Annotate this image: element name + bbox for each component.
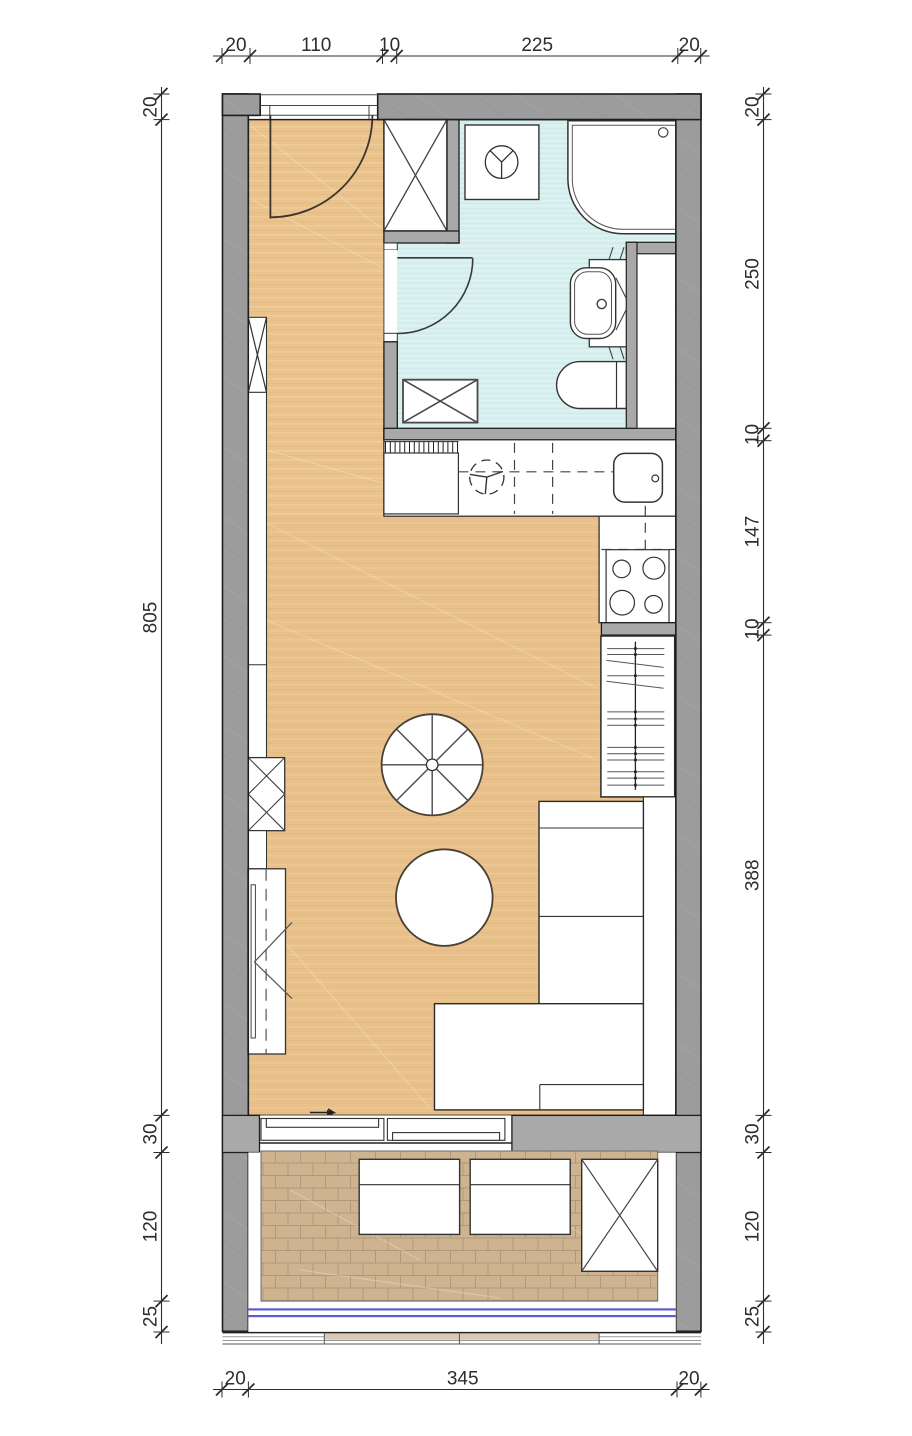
- svg-text:20: 20: [225, 1369, 246, 1390]
- svg-text:25: 25: [743, 1306, 764, 1327]
- svg-text:10: 10: [743, 618, 764, 639]
- svg-text:120: 120: [743, 1211, 764, 1243]
- svg-text:20: 20: [678, 1369, 699, 1390]
- svg-text:20: 20: [743, 96, 764, 117]
- svg-text:10: 10: [379, 35, 400, 56]
- svg-text:10: 10: [743, 424, 764, 445]
- svg-text:250: 250: [743, 258, 764, 290]
- svg-text:225: 225: [521, 35, 553, 56]
- svg-text:30: 30: [141, 1123, 162, 1144]
- svg-text:388: 388: [743, 859, 764, 891]
- svg-text:25: 25: [141, 1306, 162, 1327]
- svg-text:20: 20: [225, 35, 246, 56]
- svg-text:120: 120: [141, 1211, 162, 1243]
- svg-text:20: 20: [141, 96, 162, 117]
- svg-text:30: 30: [743, 1123, 764, 1144]
- svg-text:345: 345: [447, 1369, 479, 1390]
- svg-text:147: 147: [743, 516, 764, 548]
- svg-text:805: 805: [141, 602, 162, 634]
- svg-text:110: 110: [301, 35, 331, 56]
- svg-text:20: 20: [679, 35, 700, 56]
